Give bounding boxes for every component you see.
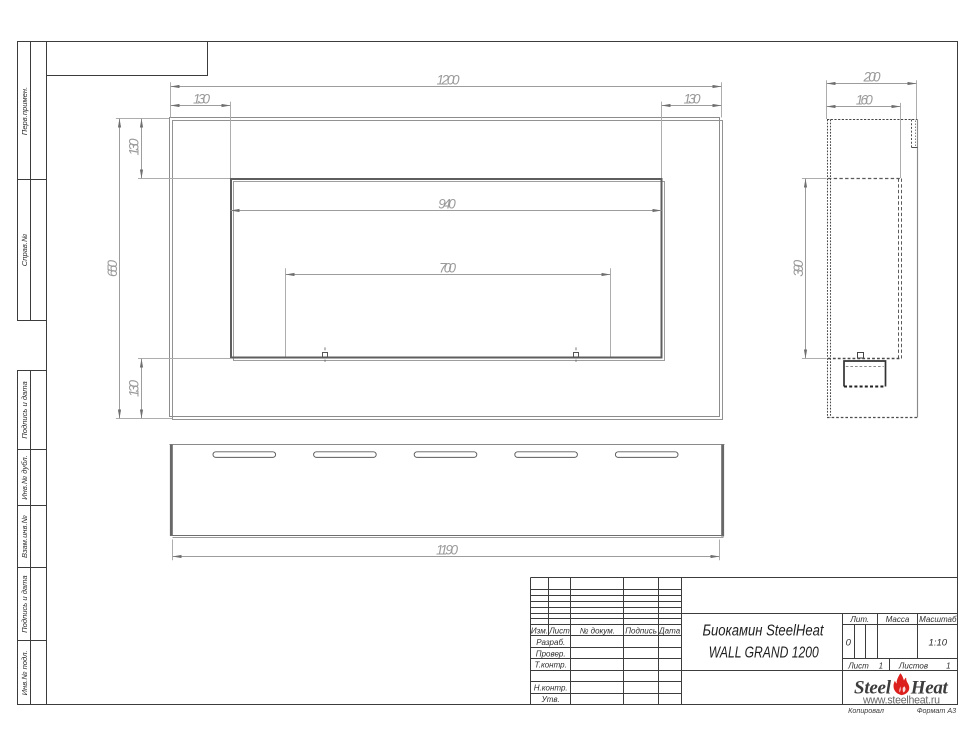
svg-text:Изм.: Изм. xyxy=(531,626,548,635)
svg-text:Лист: Лист xyxy=(548,626,570,635)
svg-text:Утв.: Утв. xyxy=(541,695,560,704)
svg-text:Масса: Масса xyxy=(886,615,910,624)
svg-text:Дата: Дата xyxy=(658,626,681,635)
svg-text:200: 200 xyxy=(863,69,881,84)
svg-text:1: 1 xyxy=(946,661,950,670)
svg-text:Провер.: Провер. xyxy=(536,649,566,658)
svg-text:Листов: Листов xyxy=(898,661,928,670)
svg-text:Подпись: Подпись xyxy=(625,626,657,635)
svg-text:0: 0 xyxy=(846,638,852,649)
svg-text:1200: 1200 xyxy=(437,72,460,87)
svg-text:Масштаб: Масштаб xyxy=(919,615,957,624)
svg-text:Н.контр.: Н.контр. xyxy=(534,684,568,693)
svg-text:Лит.: Лит. xyxy=(849,615,869,624)
svg-text:Взам.инв.№: Взам.инв.№ xyxy=(20,515,29,558)
svg-text:130: 130 xyxy=(126,380,141,397)
svg-text:Справ.№: Справ.№ xyxy=(20,234,29,266)
svg-text:№ докум.: № докум. xyxy=(580,626,615,635)
svg-text:Лист: Лист xyxy=(847,661,869,670)
svg-text:1190: 1190 xyxy=(436,542,458,557)
svg-text:Подпись и дата: Подпись и дата xyxy=(20,381,29,438)
svg-text:Инв.№ подл.: Инв.№ подл. xyxy=(20,650,29,695)
svg-text:130: 130 xyxy=(126,138,141,155)
svg-text:Копировал: Копировал xyxy=(848,706,884,715)
svg-text:650: 650 xyxy=(105,260,120,277)
svg-text:1:10: 1:10 xyxy=(929,638,948,649)
svg-text:130: 130 xyxy=(193,91,210,106)
svg-text:Перв.примен.: Перв.примен. xyxy=(20,87,29,135)
svg-text:www.steelheat.ru: www.steelheat.ru xyxy=(862,694,940,706)
svg-text:1: 1 xyxy=(879,661,883,670)
svg-text:Т.контр.: Т.контр. xyxy=(535,661,567,670)
svg-text:Инв.№ дубл.: Инв.№ дубл. xyxy=(20,455,29,500)
svg-text:Разраб.: Разраб. xyxy=(536,638,565,647)
svg-text:Формат А3: Формат А3 xyxy=(917,706,956,715)
svg-text:700: 700 xyxy=(439,260,456,275)
svg-text:160: 160 xyxy=(856,92,873,107)
svg-text:390: 390 xyxy=(791,259,806,276)
svg-text:Биокамин SteelHeat: Биокамин SteelHeat xyxy=(703,623,825,640)
svg-text:940: 940 xyxy=(438,196,456,211)
svg-text:130: 130 xyxy=(684,91,701,106)
svg-text:Подпись и дата: Подпись и дата xyxy=(20,575,29,632)
svg-text:WALL GRAND 1200: WALL GRAND 1200 xyxy=(709,645,819,662)
